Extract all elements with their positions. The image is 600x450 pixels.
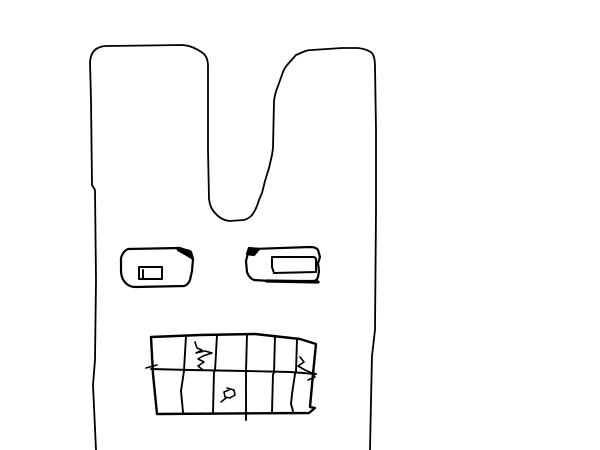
right-eye-pupil [272, 257, 316, 273]
doodle-drawing [0, 0, 600, 450]
tooth-crack-top [195, 342, 212, 370]
tooth-blob-bottom [221, 388, 235, 402]
drawing-strokes [90, 45, 376, 450]
mouth-middle-line [151, 369, 316, 374]
teeth-divider-lines [181, 334, 297, 420]
paint-canvas [0, 0, 600, 450]
right-eye-corner-fold [247, 248, 259, 255]
right-eye-bottom-edge [267, 281, 318, 282]
left-eye-corner-fold [177, 248, 193, 259]
